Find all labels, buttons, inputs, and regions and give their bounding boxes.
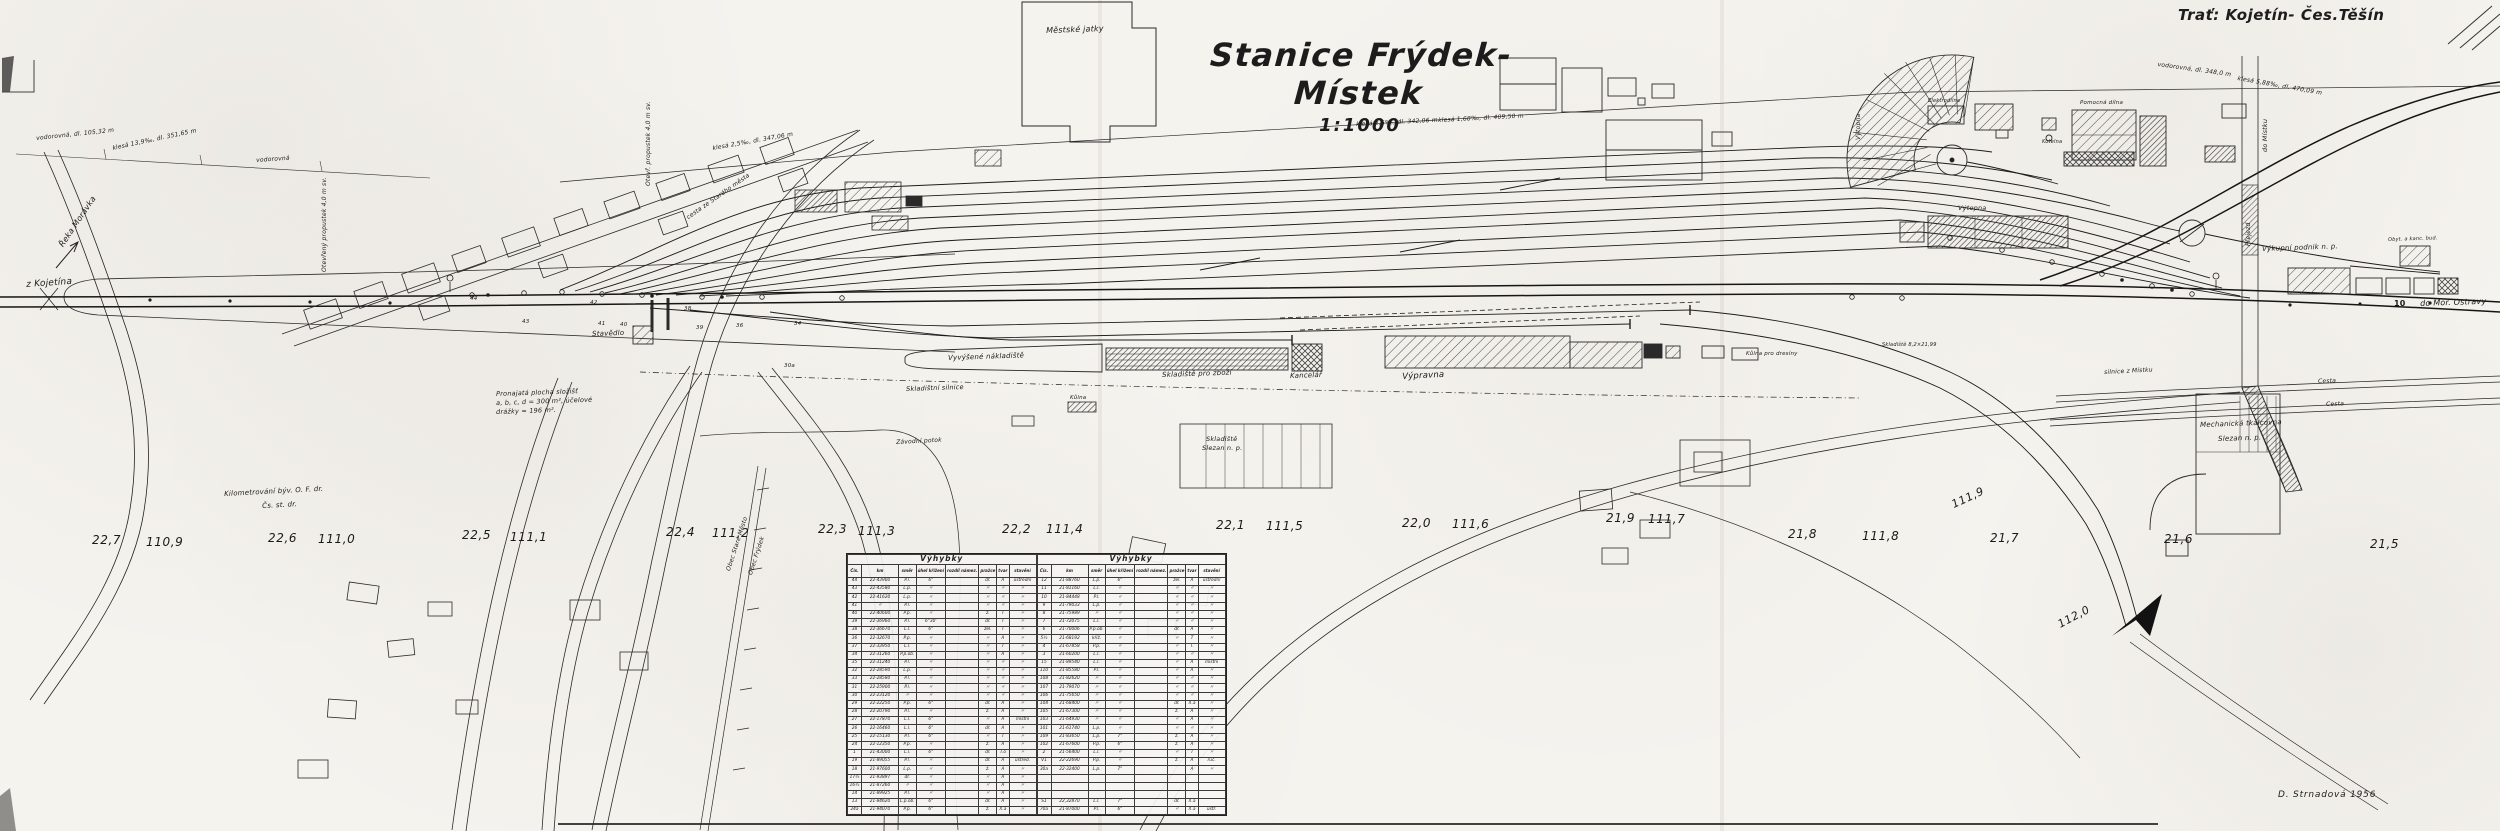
- switch-table-right: VýhybkyČís.kmsměrúhel kříženírozdíl náme…: [1037, 554, 1226, 815]
- switch-table-column-header: Čís.: [848, 565, 862, 578]
- switch-table-column-header: pražce: [1168, 565, 1186, 578]
- switch-number: 42: [590, 301, 597, 307]
- switch-table-row: 1521·89540L.l.〃〃Amístní: [1037, 659, 1225, 667]
- switch-table-row: 5½21·68192křiž.〃〃T〃: [1037, 635, 1225, 643]
- switch-table-row: 1321·84620L.p.ob.6°dř.A〃: [848, 799, 1037, 807]
- km-marker: 111,1: [510, 531, 547, 543]
- switch-table-row: 2422·12350P.p.〃ž.A〃: [848, 741, 1037, 749]
- switch-table-row: 3922·36960P.l.6°30'dř.T〃: [848, 618, 1037, 626]
- switch-table-row: 4422·43900P.l.6°dř.Aústřední: [848, 578, 1037, 586]
- km-marker: 21,9: [1606, 512, 1635, 524]
- switch-table-title: Výhybky: [848, 555, 1037, 565]
- switch-table-row: 121·43000L.l.6°dř.T.o〃: [848, 749, 1037, 757]
- switch-table-row: 3222·28590L.p.〃〃〃〃: [848, 668, 1037, 676]
- switch-table-row: 2922·22250P.p.6°dř.A〃: [848, 700, 1037, 708]
- label-pomocna-dilna: Pomocná dílna: [2080, 101, 2123, 107]
- km-marker: 22,7: [92, 534, 121, 546]
- switch-number: 44: [470, 297, 477, 303]
- label-kotelna: Kotelna: [2042, 140, 2062, 145]
- label-vytopna: Výtopna: [1856, 114, 1862, 140]
- scale-label: 1:1000: [1180, 115, 1540, 136]
- note-pronajata-plocha: a, b, c, d = 300 m², účelové: [496, 397, 592, 407]
- switch-number: 30a: [784, 364, 795, 370]
- switch-table-row: 1921·89055P.l.〃dř.Aústřed.: [848, 758, 1037, 766]
- switch-table-column-header: směr: [899, 565, 917, 578]
- switch-table-row: 30a22·32400L.p.7°A〃: [1037, 766, 1225, 774]
- switch-table-row: 921·79033L.p.〃〃〃〃: [1037, 602, 1225, 610]
- label-obyt-kanc-bud: Obyt. a kanc. bud.: [2388, 236, 2438, 243]
- label-skladiste-slezan: Skladiště: [1206, 436, 1237, 443]
- km-marker: 111,3: [858, 525, 895, 537]
- switch-table-row: 4022·40600P.p.〃ž.T〃: [848, 610, 1037, 618]
- switch-table-row: 10521·67300〃〃ž.A〃: [1037, 709, 1225, 717]
- label-kancelar: Kancelář: [1290, 372, 1322, 380]
- title-block: Stanice Frýdek-Místek 1:1000: [1180, 36, 1540, 136]
- switch-table-column-header: km: [862, 565, 899, 578]
- switch-number: 40: [620, 323, 627, 329]
- switch-table-row: 1821·97600L.p.〃ž.A〃: [848, 766, 1037, 774]
- switch-table-row: V122·22690P.p.〃ž.Aruč.: [1037, 758, 1225, 766]
- switch-table-row: 3822·36670L.l.6°žel.T〃: [848, 627, 1037, 635]
- label-z-kojetina: z Kojetína: [26, 278, 72, 290]
- grade-annotation: klesá 13,9‰, dl. 351,65 m: [112, 128, 197, 152]
- switch-table-column-header: směr: [1088, 565, 1105, 578]
- switch-table-column-header: tvar: [997, 565, 1009, 578]
- switch-number: 36: [736, 324, 743, 330]
- km-marker: 22,5: [462, 529, 491, 541]
- switch-table-row: 10921·83650L.p.7°ž.A〃: [1037, 733, 1225, 741]
- label-skladistni-silnice: Skladištní silnice: [906, 384, 964, 393]
- switch-table-row: 4322·43580L.p.〃〃〃〃: [848, 586, 1037, 594]
- switch-table-column-header: úhel křížení: [1105, 565, 1134, 578]
- switch-table-row: [1037, 790, 1225, 798]
- label-obec-frydek: Obec Frýdek: [748, 536, 766, 576]
- switch-table-column-header: stavění: [1198, 565, 1225, 578]
- switch-table-row: [1037, 774, 1225, 782]
- station-plan-sheet: Městské jatkyz KojetínaŘeka Morávkavodor…: [0, 0, 2500, 831]
- switch-table-row: 3322·28580P.l.〃〃〃〃: [848, 676, 1037, 684]
- km-marker: 111,9: [1950, 485, 1986, 510]
- switch-table-row: 3122·25900P.l.〃〃〃〃: [848, 684, 1037, 692]
- km-marker: 111,7: [1648, 513, 1685, 525]
- switch-table-row: 1421·89925P.l.〃〃A〃: [848, 790, 1037, 798]
- km-marker: 111,5: [1266, 520, 1303, 532]
- km-marker: 22,4: [666, 526, 695, 538]
- switch-table-title: Výhybky: [1037, 555, 1225, 565]
- label-skladiste-slezan: Slezan n. p.: [1202, 445, 1242, 452]
- grade-annotation: klesá 2,5‰, dl. 347,06 m: [712, 132, 794, 152]
- switch-table-row: 421·67858P.p.〃〃T.〃: [1037, 643, 1225, 651]
- label-mestske-jatky: Městské jatky: [1046, 25, 1104, 35]
- switch-table-row: 10821·82620〃〃〃〃〃: [1037, 676, 1225, 684]
- switch-number: 43: [522, 320, 529, 326]
- grade-annotation: vodorovná: [256, 156, 290, 164]
- label-prejezd: Přejezd: [2246, 223, 2252, 247]
- switch-table-row: 10121·61740L.p.〃〃〃〃: [1037, 725, 1225, 733]
- grade-annotation: klesá 5,88‰, dl. 470,09 m: [2237, 76, 2323, 97]
- switch-table-row: 1121·81160L.l.〃〃〃〃: [1037, 586, 1225, 594]
- label-cesta: Cesta: [2318, 378, 2336, 385]
- switch-table-row: 3022·23120〃〃〃〃〃: [848, 692, 1037, 700]
- label-reka-moravka: Řeka Morávka: [58, 195, 98, 249]
- label-skladiste-pro-zbozi: Skladiště pro zboží: [1162, 370, 1232, 379]
- switch-table-row: 821·75989〃〃〃〃〃: [1037, 610, 1225, 618]
- switch-table-column-header: Čís.: [1037, 565, 1051, 578]
- switch-table-row: 10221·67600P.p.6°ž.A〃: [1037, 741, 1225, 749]
- label-propustek: Otevřený propustek 4,0 m sv.: [322, 177, 328, 272]
- switch-table-row: 3522·31240P.l.〃〃〃〃: [848, 659, 1037, 667]
- switch-table-column-header: tvar: [1186, 565, 1198, 578]
- grade-annotation: vodorovná, dl. 105,32 m: [36, 128, 115, 142]
- switch-table-row: 2522·15130P.l.6°〃T〃: [848, 733, 1037, 741]
- switch-table-row: 70a21·87000P.l.6°〃X.aústř.: [1037, 807, 1225, 815]
- label-vyvysene-nakladiste: Vyvýšené nákladiště: [948, 352, 1024, 362]
- label-zavodni-potok: Závodní potok: [896, 438, 942, 446]
- switch-table-row: 3722·33950L.l.〃〃T〃: [848, 643, 1037, 651]
- switch-table-row: [1037, 782, 1225, 790]
- km-marker: 111,2: [712, 527, 749, 539]
- label-tkalcovna: Mechanická tkalcovna: [2200, 419, 2282, 429]
- label-silnice-z-mistku: silnice z Místku: [2104, 367, 2153, 376]
- switch-table-row: 2822·20790P.l.〃ž.A〃: [848, 709, 1037, 717]
- km-marker: 111,6: [1452, 518, 1489, 530]
- km-marker: 22,6: [268, 532, 297, 544]
- label-kulna: Kůlna: [1070, 396, 1086, 402]
- note-kilometrovani: Čs. st. dr.: [262, 501, 297, 510]
- label-stavedlo: Stavědlo: [592, 330, 624, 338]
- km-marker: 111,8: [1862, 530, 1899, 542]
- km-marker: 22,2: [1002, 523, 1031, 535]
- switch-table-column-header: pražce: [979, 565, 997, 578]
- label-elektrodilna: Elektrodílna: [1928, 99, 1960, 104]
- km-marker: 111,4: [1046, 523, 1083, 535]
- switch-table-row: 4222·41620L.p.〃〃〃〃: [848, 594, 1037, 602]
- km-marker: 21,6: [2164, 533, 2193, 545]
- switch-table-row: 721·72075L.l.〃〃〃〃: [1037, 618, 1225, 626]
- km-marker: 21,7: [1990, 532, 2019, 544]
- switch-table-row: 2722·17870L.l.6°〃Amístní: [848, 717, 1037, 725]
- label-cesta: Cesta: [2326, 401, 2344, 408]
- label-tkalcovna: Slezan n. p.: [2218, 434, 2261, 443]
- label-vypravna: Výpravna: [1402, 371, 1445, 382]
- switch-number: 41: [598, 322, 605, 328]
- page-title: Stanice Frýdek-Místek: [1177, 36, 1542, 112]
- signature: D. Strnadová 1956: [2278, 790, 2376, 800]
- switch-table-row: 11021·85580P.l.〃〃A〃: [1037, 668, 1225, 676]
- switch-table-column-header: stavění: [1009, 565, 1036, 578]
- switch-number: 38: [684, 307, 691, 313]
- switch-table-row: 1021·84448P.l.〃〃〃〃: [1037, 594, 1225, 602]
- label-cesta-stare-mesto: cesta ze Starého města: [686, 173, 751, 221]
- km-marker: 21,5: [2370, 538, 2399, 550]
- switch-table-row: 2622·16460L.l.6°dř.A〃: [848, 725, 1037, 733]
- route-label: Trať: Kojetín- Čes.Těšín: [2178, 6, 2384, 24]
- switch-table-row: 41〃P.l.〃〃〃〃: [848, 602, 1037, 610]
- switch-table-left: VýhybkyČís.kmsměrúhel kříženírozdíl náme…: [847, 554, 1037, 815]
- km-marker: 110,9: [146, 536, 183, 548]
- switch-table-row: 3622·32670P.p.〃〃A〃: [848, 635, 1037, 643]
- switch-number: 39: [696, 326, 703, 332]
- km-marker: 112,0: [2056, 604, 2092, 630]
- label-vytopna: Výtopna: [1958, 205, 1986, 212]
- switch-table-row: 1221·88760L.p.6°žel.Aústřední: [1037, 578, 1225, 586]
- switch-table-row: 10721·79070〃〃〃〃〃: [1037, 684, 1225, 692]
- label-do-mor-ostravy: do Mor. Ostravy: [2420, 298, 2486, 308]
- switch-table-row: S122,32870L.l.7°dř.X.a: [1037, 799, 1225, 807]
- km-marker: 22,1: [1216, 519, 1245, 531]
- label-kulna-pro-dresiny: Kůlna pro dresíny: [1746, 352, 1798, 358]
- switch-table-row: 10321·64930〃〃〃A〃: [1037, 717, 1225, 725]
- switch-table-row: 10621·75650〃〃〃〃〃: [1037, 692, 1225, 700]
- switch-number: 34: [794, 322, 801, 328]
- switch-table-row: 321·60200L.l.〃〃〃〃: [1037, 651, 1225, 659]
- switch-table-row: 16½21·87260〃〃〃A〃: [848, 782, 1037, 790]
- switch-table-column-header: rozdíl námez.: [1135, 565, 1168, 578]
- label-obec-stare-mesto: Obec Staré Město: [726, 516, 749, 572]
- switch-table-column-header: km: [1051, 565, 1088, 578]
- note-pronajata-plocha: drážky = 196 m².: [496, 407, 556, 416]
- label-skladiste: Skladiště 8,2×21,99: [1882, 343, 1937, 348]
- switch-table-row: 10421·68400〃〃dř.X.a〃: [1037, 700, 1225, 708]
- track-number: 10: [2394, 300, 2406, 308]
- km-marker: 21,8: [1788, 528, 1817, 540]
- label-propustek: Otevř. propustek 4,0 m sv.: [646, 101, 652, 186]
- switch-table-row: 621·70006P.p.ob.〃dř.A〃: [1037, 627, 1225, 635]
- switch-table-row: 24a21·94070P.p.6°ž.X.a〃: [848, 807, 1037, 815]
- grade-annotation: vodorovná, dl. 348,0 m: [2157, 62, 2231, 78]
- label-vykupni-podnik: Výkupní podnik n. p.: [2262, 243, 2338, 253]
- switch-table: VýhybkyČís.kmsměrúhel kříženírozdíl náme…: [846, 553, 1227, 816]
- note-kilometrovani: Kilometrování býv. O. F. dr.: [224, 486, 323, 498]
- switch-table-column-header: rozdíl námez.: [946, 565, 979, 578]
- km-marker: 22,3: [818, 523, 847, 535]
- switch-table-row: 3422·31260P.p.ob.〃〃A〃: [848, 651, 1037, 659]
- switch-table-row: 17½21·93897dř.〃〃A〃: [848, 774, 1037, 782]
- switch-table-column-header: úhel křížení: [916, 565, 945, 578]
- label-do-mistku: do Místku: [2262, 119, 2269, 152]
- km-marker: 111,0: [318, 533, 355, 545]
- switch-table-row: 221·56400L.l.〃〃T〃: [1037, 749, 1225, 757]
- km-marker: 22,0: [1402, 517, 1431, 529]
